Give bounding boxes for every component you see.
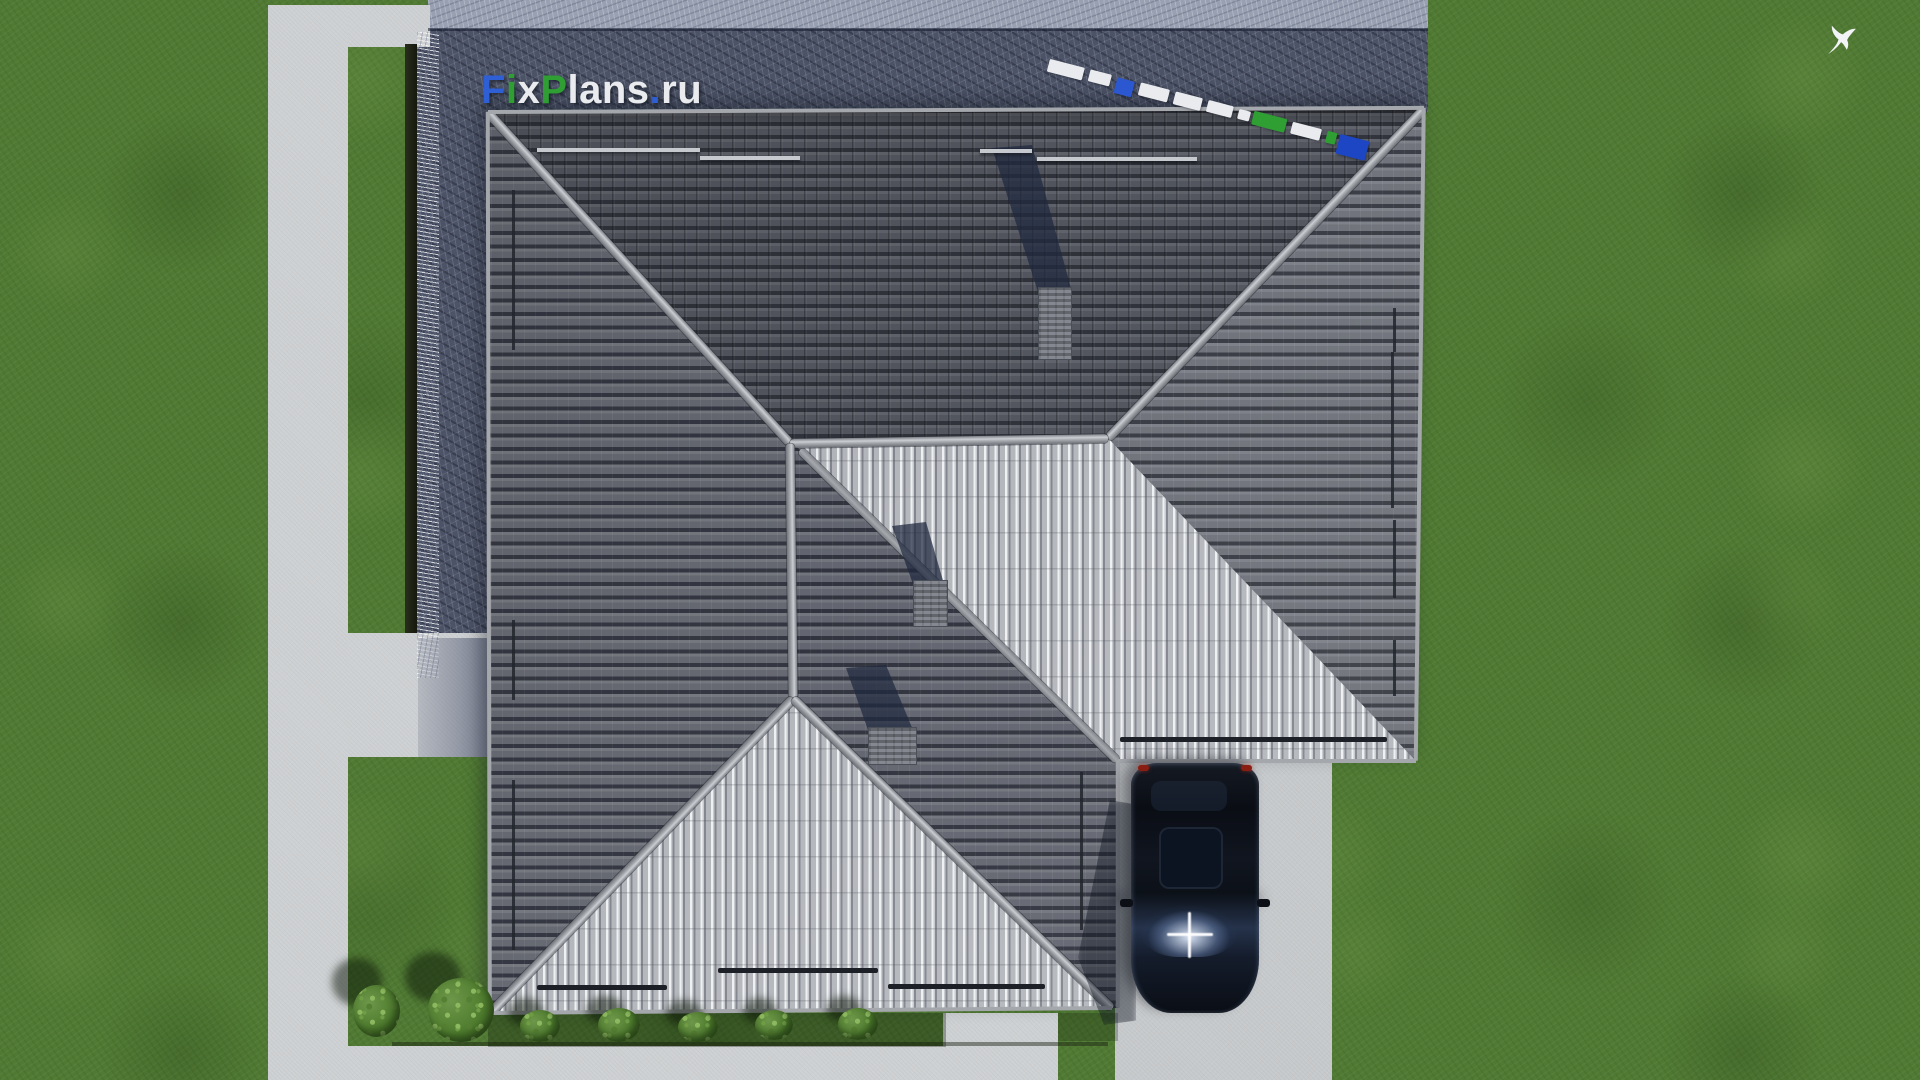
logo-dash xyxy=(1206,100,1234,118)
watermark-letter: x xyxy=(518,68,541,112)
watermark-letter: i xyxy=(506,68,518,112)
logo-dash xyxy=(1173,91,1203,111)
roof-trim-line xyxy=(1080,772,1083,930)
bush-large xyxy=(428,978,494,1042)
car-taillight xyxy=(1138,765,1149,771)
house-roof xyxy=(480,100,1430,1020)
watermark-letter: ru xyxy=(661,68,702,112)
path-bottom xyxy=(268,1046,1058,1080)
watermark-letter: P xyxy=(540,68,567,112)
roof-planes-group xyxy=(480,100,1430,1020)
car-taillight xyxy=(1241,765,1252,771)
watermark-letter: lans xyxy=(568,68,650,112)
snow-guard-bar xyxy=(700,156,800,160)
walkway-south-pad xyxy=(943,1013,1058,1080)
car-side-mirror xyxy=(1120,899,1133,907)
logo-dash xyxy=(1237,109,1251,122)
frost-lit-strip xyxy=(417,32,439,678)
watermark-letter: F xyxy=(481,68,506,112)
logo-dash xyxy=(1325,131,1338,145)
bush-small xyxy=(678,1012,718,1042)
bush-large xyxy=(353,985,400,1037)
bush-small xyxy=(838,1008,878,1040)
terrace-edge-line xyxy=(428,28,1428,31)
house-shadow-on-walkway xyxy=(418,638,488,757)
chimney xyxy=(868,727,917,765)
roof-trim-line xyxy=(1393,308,1396,352)
watermark: FixPlans.ru xyxy=(481,68,702,113)
snow-guard-bar xyxy=(980,149,1032,153)
roof-trim-line xyxy=(1393,520,1396,598)
snow-guard-bar xyxy=(718,968,878,973)
car-rear-window xyxy=(1151,781,1227,811)
snow-guard-bar xyxy=(1120,737,1387,742)
watermark-letter: . xyxy=(650,68,662,112)
roof-trim-line xyxy=(512,780,515,950)
garden-edging-line xyxy=(405,44,417,633)
path-left-vertical xyxy=(268,5,348,1080)
roof-trim-line xyxy=(1391,352,1394,508)
roof-trim-line xyxy=(1393,640,1396,696)
bush-small xyxy=(755,1010,793,1040)
snow-guard-bar xyxy=(537,148,700,152)
logo-dash xyxy=(1088,69,1112,86)
logo-dash xyxy=(1138,82,1170,102)
chimney xyxy=(913,580,948,627)
roof-trim-line xyxy=(512,190,515,350)
snow-guard-bar xyxy=(888,984,1045,989)
chimney xyxy=(1038,287,1072,360)
logo-dash xyxy=(1290,122,1322,141)
windshield-glint xyxy=(1188,912,1191,958)
paved-terrace-far-edge xyxy=(428,0,1428,29)
snow-guard-bar xyxy=(537,985,667,990)
render-viewport: FixPlans.ru xyxy=(0,0,1920,1080)
snow-guard-bar xyxy=(1037,157,1197,161)
bush-small xyxy=(598,1008,640,1042)
parked-car xyxy=(1125,757,1265,1017)
car-glass-roof xyxy=(1159,827,1223,889)
flying-bird-icon xyxy=(1816,15,1866,69)
bush-small xyxy=(520,1010,560,1042)
roof-trim-line xyxy=(512,620,515,700)
car-side-mirror xyxy=(1257,899,1270,907)
